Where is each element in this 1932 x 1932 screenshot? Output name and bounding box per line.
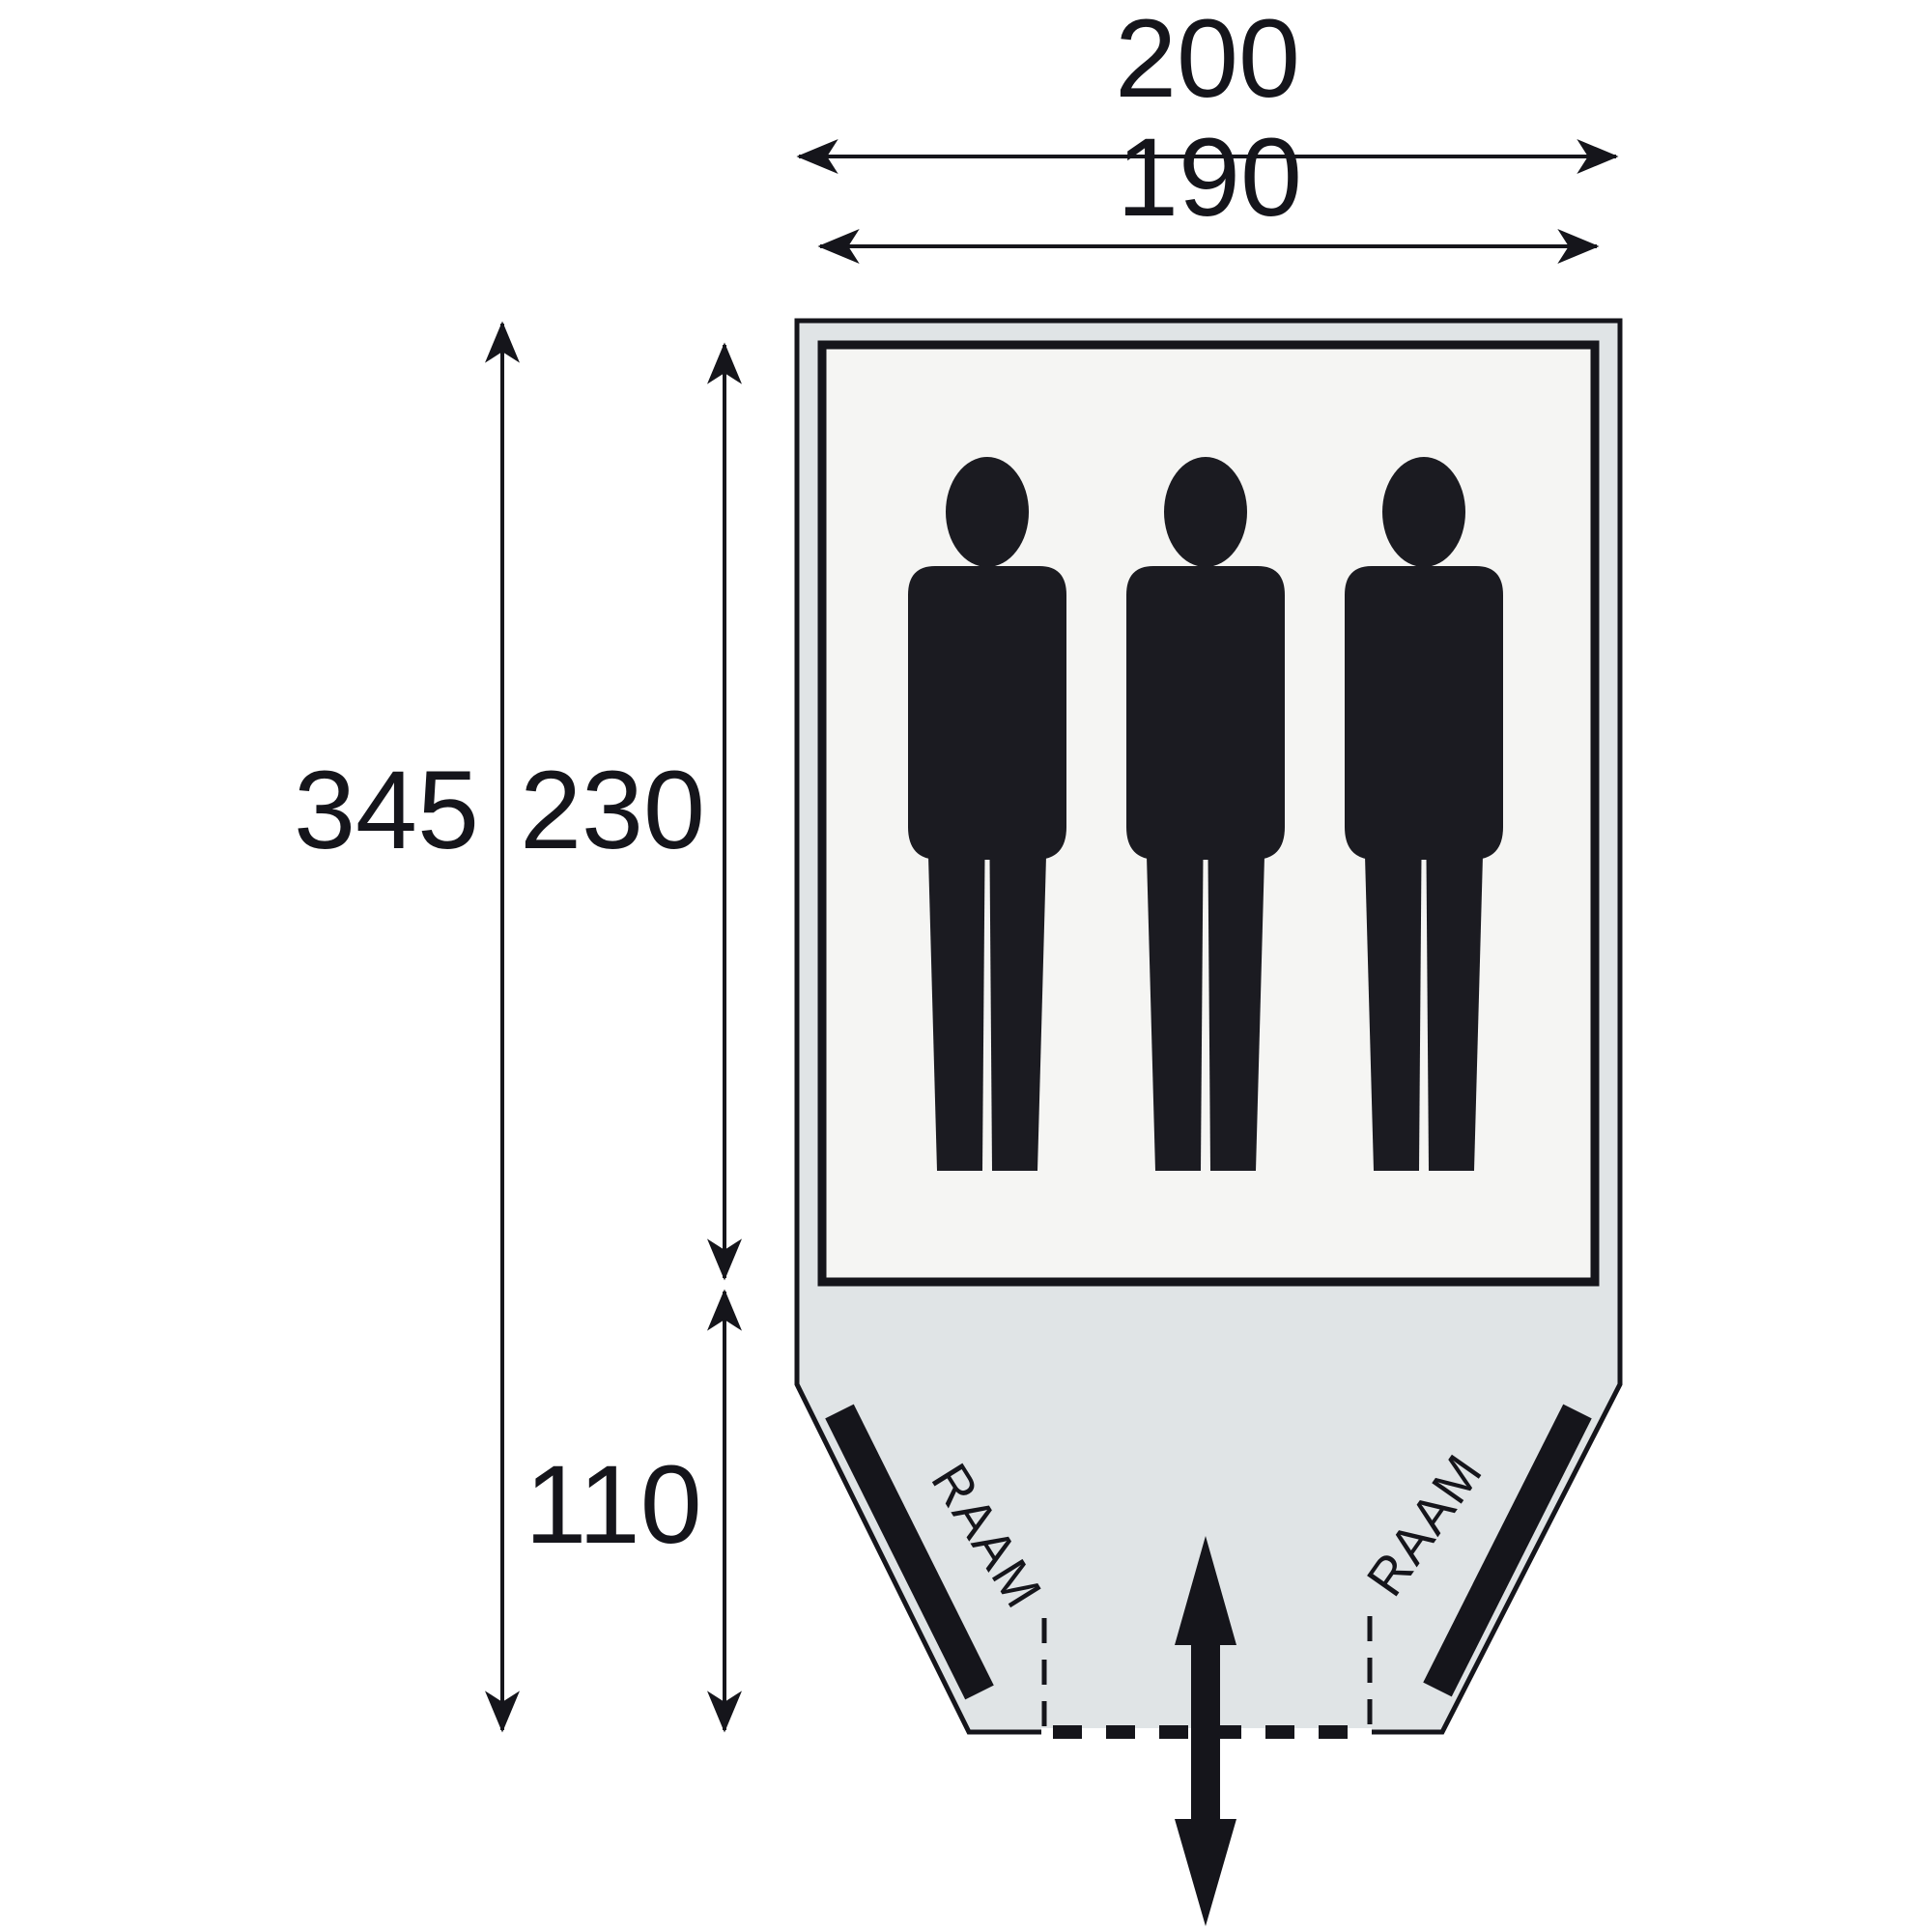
person-leg-right (990, 856, 1047, 1171)
person-head (1164, 457, 1247, 567)
person-leg-left (1365, 856, 1422, 1171)
person-torso (1345, 566, 1503, 860)
person-torso (908, 566, 1066, 860)
person-leg-right (1427, 856, 1484, 1171)
tent-floorplan-diagram: RAAM RAAM 20 (0, 0, 1932, 1932)
person-leg-right (1208, 856, 1265, 1171)
dimension-label-outer-width: 200 (1115, 0, 1300, 121)
person-head (946, 457, 1029, 567)
person-torso (1126, 566, 1285, 860)
person-head (1382, 457, 1465, 567)
tent-floorplan-svg: RAAM RAAM 20 (0, 0, 1932, 1932)
person-leg-left (928, 856, 985, 1171)
dimension-label-porch-depth: 110 (525, 1443, 701, 1567)
dimension-label-cabin-depth: 230 (520, 749, 705, 872)
dimension-label-inner-width: 190 (1117, 116, 1302, 240)
person-leg-left (1147, 856, 1204, 1171)
dimension-label-total-depth: 345 (294, 749, 479, 872)
